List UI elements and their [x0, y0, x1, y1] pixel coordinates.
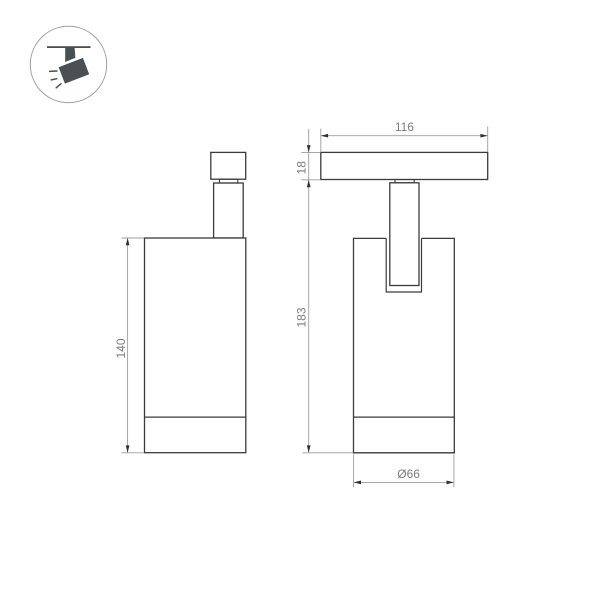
svg-text:Ø66: Ø66 — [397, 467, 420, 481]
svg-text:116: 116 — [395, 120, 414, 134]
svg-text:18: 18 — [295, 161, 309, 175]
svg-text:140: 140 — [114, 338, 128, 358]
svg-text:183: 183 — [295, 307, 309, 327]
